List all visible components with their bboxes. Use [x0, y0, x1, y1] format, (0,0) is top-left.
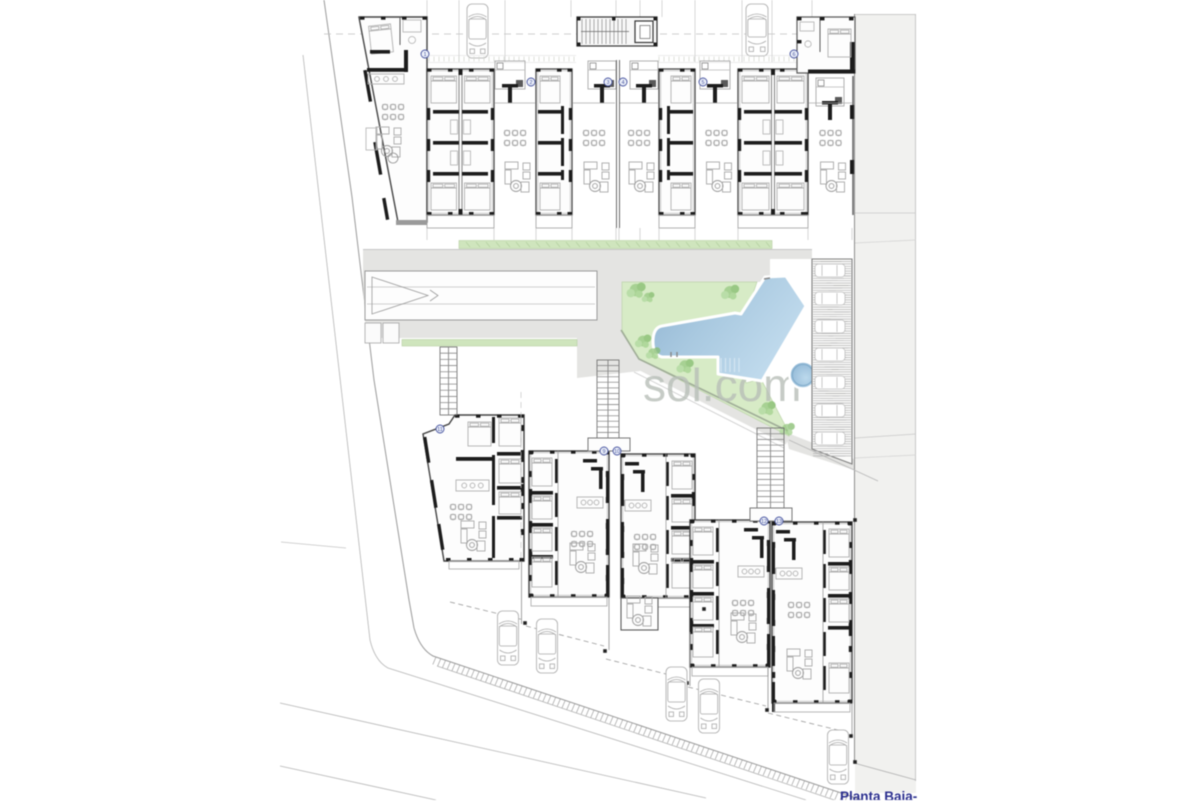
svg-text:13: 13 — [776, 519, 782, 525]
svg-text:11: 11 — [437, 427, 443, 433]
svg-text:10: 10 — [614, 449, 620, 455]
svg-text:2: 2 — [529, 80, 532, 86]
svg-text:9: 9 — [602, 449, 605, 455]
svg-text:12: 12 — [761, 519, 767, 525]
svg-text:1: 1 — [423, 52, 426, 58]
svg-text:4: 4 — [621, 80, 624, 86]
svg-text:Planta Baja-: Planta Baja- — [840, 789, 917, 800]
svg-text:6: 6 — [792, 52, 795, 58]
svg-text:5: 5 — [701, 80, 704, 86]
svg-text:3: 3 — [606, 80, 609, 86]
